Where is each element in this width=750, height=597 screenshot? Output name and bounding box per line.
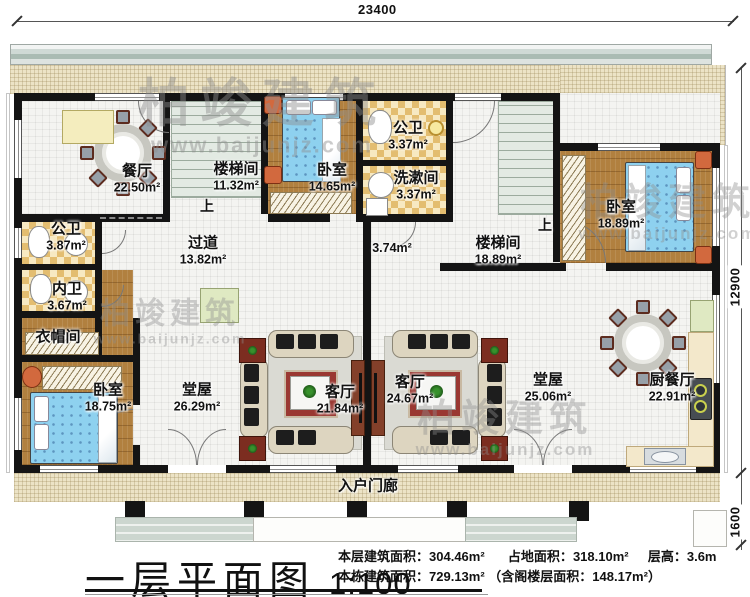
room-area: 25.06m² [525, 389, 572, 403]
room-name: 楼梯间 [475, 236, 522, 253]
nightstand [695, 246, 712, 264]
entry-steps [465, 517, 577, 542]
watermark: 柏竣建筑 www.baijunjz.com [138, 78, 386, 159]
plant-icon [303, 385, 316, 398]
land-area-value: 318.10m² [573, 549, 629, 564]
watermark: 柏竣建筑 www.baijunjz.com [416, 400, 595, 460]
room-area: 22.50m² [114, 180, 161, 194]
cushion [452, 334, 470, 349]
cushion [276, 334, 294, 349]
watermark: 柏竣建筑 www.baijunjz.com [94, 298, 247, 346]
room-area: 18.89m² [598, 216, 645, 230]
end-table [239, 436, 266, 461]
room-name: 过道 [180, 236, 227, 253]
storey-height-label: 层高： [648, 549, 687, 564]
room-area: 3.37m² [388, 137, 428, 151]
stairs-2 [498, 101, 555, 215]
room-area: 3.74m² [372, 241, 412, 255]
plant-icon [248, 444, 257, 453]
watermark-brand: 柏竣建筑 [94, 298, 247, 330]
entry-door-gap [168, 465, 226, 473]
tv-icon [374, 373, 377, 423]
cushion [244, 386, 259, 404]
room-area: 21.84m² [317, 401, 364, 415]
room-label-living-left: 客厅 21.84m² [317, 385, 364, 416]
watermark-brand: 柏竣建筑 [138, 78, 386, 133]
watermark-site: www.baijunjz.com [94, 330, 247, 346]
room-label-bedroom-left: 卧室 18.75m² [85, 383, 132, 414]
cushion [244, 364, 259, 382]
room-area: 24.67m² [387, 391, 434, 405]
burner [694, 384, 707, 397]
land-area-label: 占地面积： [508, 549, 573, 564]
room-label-corridor: 过道 13.82m² [180, 236, 227, 267]
cushion [298, 334, 316, 349]
room-area: 14.65m² [309, 179, 356, 193]
watermark-brand: 柏竣建筑 [416, 400, 595, 440]
plant-icon [248, 346, 257, 355]
dimension-width: 23400 [355, 2, 400, 17]
room-label-washroom: 洗漱间 3.37m² [393, 171, 438, 202]
room-name: 餐厅 [114, 164, 161, 181]
entry-door-gap [514, 465, 572, 473]
end-table [481, 338, 508, 363]
room-area: 3.37m² [393, 187, 438, 201]
dimension-height-main: 12900 [728, 266, 743, 309]
room-name: 公卫 [388, 121, 428, 138]
room-label-hall-left: 堂屋 26.29m² [174, 383, 221, 414]
room-name: 客厅 [387, 375, 434, 392]
side-step [693, 510, 727, 547]
room-area: 3.67m² [47, 298, 87, 312]
cushion [408, 334, 426, 349]
title-underline [85, 589, 482, 592]
stairs-up-label: 上 [200, 196, 214, 216]
eave-line [6, 93, 10, 473]
watermark-site: www.baijunjz.com [416, 440, 595, 460]
room-name: 堂屋 [525, 373, 572, 390]
opening-dashed [100, 217, 162, 219]
sink-icon [368, 172, 394, 198]
fridge [690, 300, 714, 332]
room-area: 13.82m² [180, 252, 227, 266]
room-area: 11.32m² [213, 178, 259, 192]
floor-drain-icon [428, 120, 444, 136]
room-label-nook: 3.74m² [372, 241, 412, 255]
kitchen-sink [644, 448, 686, 465]
washer-icon [366, 198, 388, 216]
room-area: 3.87m² [46, 238, 86, 252]
nightstand [695, 151, 712, 169]
cushion [320, 334, 338, 349]
wardrobe [270, 192, 352, 214]
room-label-porch: 入户门廊 [338, 479, 398, 496]
room-name: 衣帽间 [35, 330, 80, 347]
room-name: 公卫 [46, 222, 86, 239]
nightstand [22, 366, 42, 388]
stats-line-2: 本栋建筑面积：729.13m² （含阁楼层面积：148.17m²） [338, 567, 717, 587]
room-label-kitchen-dining: 厨餐厅 22.91m² [649, 373, 696, 404]
sink-basin [651, 451, 679, 463]
room-label-bedroom-top: 卧室 14.65m² [309, 163, 356, 194]
pillow [34, 424, 49, 450]
floor-area-value: 304.46m² [429, 549, 485, 564]
pillow [34, 396, 49, 422]
room-name: 洗漱间 [393, 171, 438, 188]
dimension-line-right [741, 68, 742, 550]
tv-cabinet [371, 360, 385, 436]
burner [694, 400, 707, 413]
room-name: 卧室 [598, 200, 645, 217]
cushion [430, 334, 448, 349]
room-label-stair1: 楼梯间 11.32m² [213, 162, 259, 193]
room-area: 22.91m² [649, 389, 696, 403]
room-name: 内卫 [47, 282, 87, 299]
area-stats: 本层建筑面积：304.46m² 占地面积：318.10m² 层高：3.6m 本栋… [338, 547, 717, 587]
chair [116, 110, 130, 124]
stairs-up-label: 上 [538, 215, 552, 235]
attic-area-note: （含阁楼层面积：148.17m²） [488, 569, 661, 584]
cushion [244, 408, 259, 426]
room-name: 厨餐厅 [649, 373, 696, 390]
room-area: 18.89m² [475, 252, 522, 266]
dimension-line-top [16, 21, 734, 22]
entry-landing [253, 517, 467, 542]
room-area: 18.75m² [85, 399, 132, 413]
title-underline-thin [85, 594, 488, 595]
chair [600, 336, 614, 350]
sideboard [62, 110, 114, 144]
room-name: 堂屋 [174, 383, 221, 400]
room-label-dining: 餐厅 22.50m² [114, 164, 161, 195]
room-name: 卧室 [309, 163, 356, 180]
room-label-stair2: 楼梯间 18.89m² [475, 236, 522, 267]
room-label-living-right: 客厅 24.67m² [387, 375, 434, 406]
room-name: 卧室 [85, 383, 132, 400]
cushion [298, 430, 316, 445]
room-name: 楼梯间 [213, 162, 259, 179]
chair [672, 336, 686, 350]
nightstand [264, 166, 282, 184]
room-name: 入户门廊 [338, 479, 398, 496]
chair [636, 300, 650, 314]
cushion [487, 364, 502, 382]
room-label-bath-top: 公卫 3.37m² [388, 121, 428, 152]
floor-area-label: 本层建筑面积： [338, 549, 429, 564]
room-label-bedroom-right: 卧室 18.89m² [598, 200, 645, 231]
room-label-hall-right: 堂屋 25.06m² [525, 373, 572, 404]
floor-plan: 23400 [0, 0, 750, 597]
roof-edge-band [10, 44, 712, 65]
chair [80, 146, 94, 160]
storey-height-value: 3.6m [687, 549, 717, 564]
watermark-site: www.baijunjz.com [138, 132, 386, 158]
room-name: 客厅 [317, 385, 364, 402]
cushion [276, 430, 294, 445]
entry-steps [115, 517, 255, 542]
total-area-value: 729.13m² [429, 569, 485, 584]
stats-line-1: 本层建筑面积：304.46m² 占地面积：318.10m² 层高：3.6m [338, 547, 717, 567]
room-label-bath-left: 公卫 3.87m² [46, 222, 86, 253]
dimension-height-porch: 1600 [728, 505, 743, 540]
plant-icon [490, 346, 499, 355]
room-label-bath-inner: 内卫 3.67m² [47, 282, 87, 313]
room-area: 26.29m² [174, 399, 221, 413]
room-label-cloakroom: 衣帽间 [35, 330, 80, 347]
total-area-label: 本栋建筑面积： [338, 569, 429, 584]
